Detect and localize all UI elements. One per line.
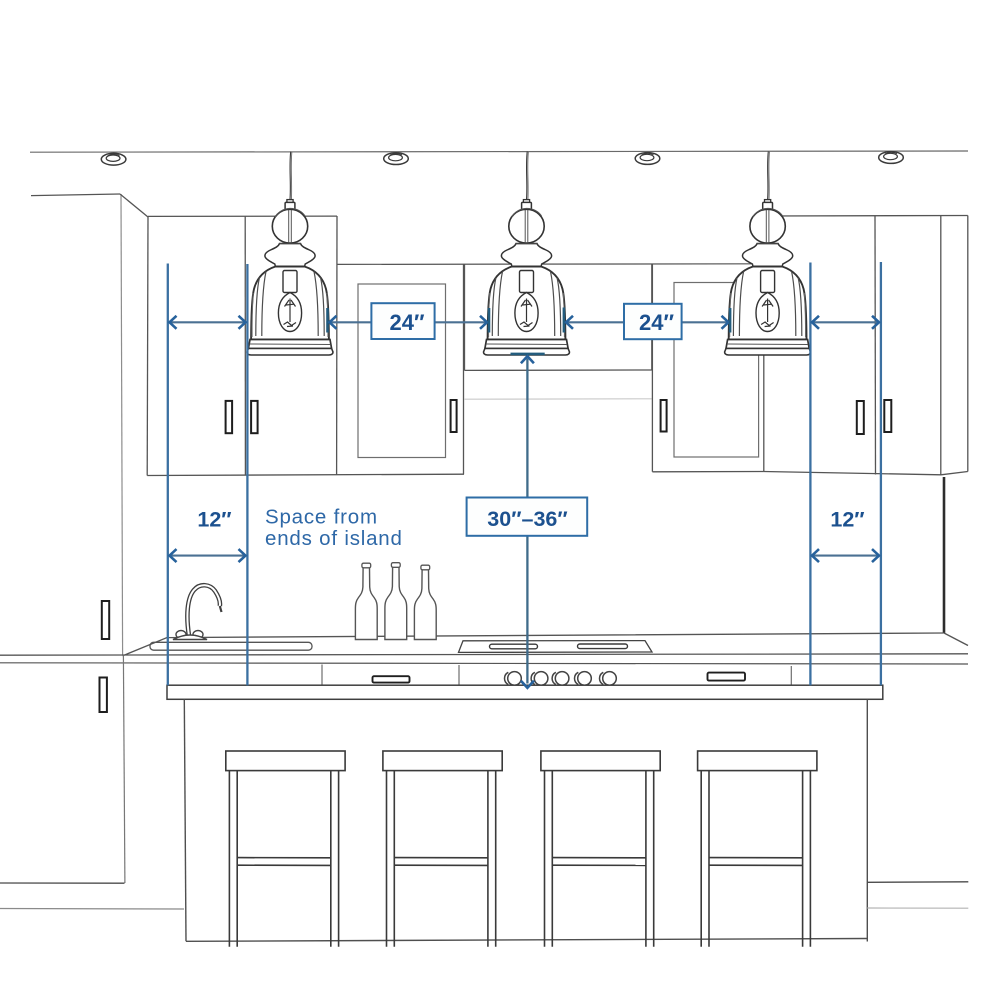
svg-text:12″: 12″ <box>197 508 231 532</box>
svg-text:30″–36″: 30″–36″ <box>487 507 567 531</box>
svg-text:24″: 24″ <box>639 310 674 335</box>
svg-text:Space from: Space from <box>265 506 378 529</box>
svg-text:24″: 24″ <box>389 310 424 335</box>
svg-text:ends of island: ends of island <box>265 527 403 550</box>
svg-text:12″: 12″ <box>830 508 864 532</box>
